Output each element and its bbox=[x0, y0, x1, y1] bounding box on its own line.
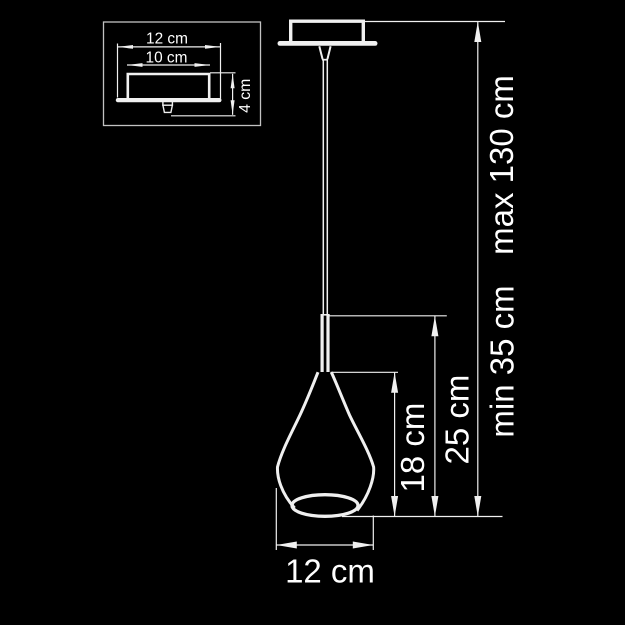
svg-text:25 cm: 25 cm bbox=[439, 375, 476, 465]
svg-text:4 cm: 4 cm bbox=[237, 79, 254, 113]
svg-text:18 cm: 18 cm bbox=[394, 403, 431, 493]
svg-text:12 cm: 12 cm bbox=[146, 30, 188, 47]
svg-text:min 35 cm: min 35 cm bbox=[484, 285, 521, 437]
svg-text:max 130 cm: max 130 cm bbox=[483, 75, 520, 255]
svg-text:12 cm: 12 cm bbox=[285, 553, 375, 590]
svg-text:10 cm: 10 cm bbox=[146, 50, 188, 67]
